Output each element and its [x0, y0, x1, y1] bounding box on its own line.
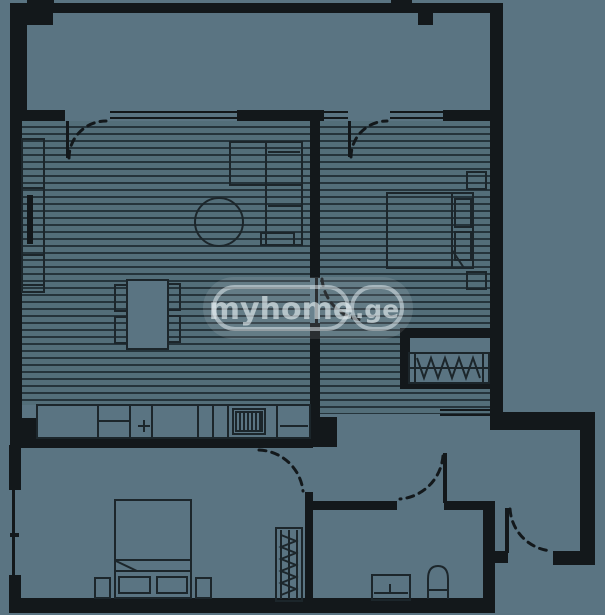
kitchen-counter	[37, 405, 310, 438]
floor-plan-image: myhome .ge	[0, 0, 605, 615]
entrance-door-arc	[510, 509, 552, 551]
watermark-brand-text: myhome	[209, 292, 353, 327]
wall-segment	[24, 13, 53, 25]
nightstand	[95, 578, 110, 598]
toilet	[428, 566, 448, 599]
bedroom-2-door-arc	[259, 450, 303, 491]
wall-segment	[10, 438, 313, 448]
wall-segment	[310, 121, 320, 278]
watermark: myhome .ge	[203, 277, 413, 339]
wall-segment	[10, 418, 37, 448]
bathroom-sink	[372, 575, 410, 600]
floor-plan-svg: myhome .ge	[0, 0, 605, 615]
wall-segment	[9, 598, 495, 613]
bedroom-1-floor-strip	[320, 328, 400, 414]
wall-segment	[10, 3, 503, 13]
wall-segment	[311, 501, 397, 510]
wall-segment	[310, 417, 337, 447]
bedroom-2-side-window	[10, 490, 19, 575]
wall-segment	[10, 121, 22, 447]
dining-table	[127, 280, 168, 349]
wall-segment	[490, 412, 595, 430]
wall-segment	[418, 13, 433, 25]
bedroom-1-balcony-window	[324, 111, 443, 119]
blanket-fold	[116, 561, 137, 571]
wall-segment	[553, 551, 595, 565]
entrance-door-leaf	[505, 508, 509, 553]
wall-segment	[391, 0, 412, 4]
bed-2	[95, 500, 211, 598]
wall-segment	[444, 501, 483, 510]
watermark-tld-text: .ge	[355, 295, 399, 324]
wall-segment	[400, 328, 490, 338]
nightstand	[196, 578, 211, 598]
closet-hanging-rail	[409, 353, 489, 383]
wall-segment	[490, 3, 503, 415]
pillow	[119, 577, 150, 593]
wardrobe-hanging-rail	[276, 528, 302, 601]
tv-screen	[27, 195, 33, 244]
living-room-balcony-window	[110, 111, 237, 119]
wall-segment	[9, 445, 21, 490]
wall-segment	[237, 110, 324, 121]
wall-segment	[27, 0, 54, 4]
wall-segment	[10, 110, 65, 121]
pillow	[157, 577, 187, 593]
wall-segment	[580, 430, 595, 565]
wall-segment	[10, 3, 27, 121]
bathroom-door-arc	[400, 456, 443, 499]
